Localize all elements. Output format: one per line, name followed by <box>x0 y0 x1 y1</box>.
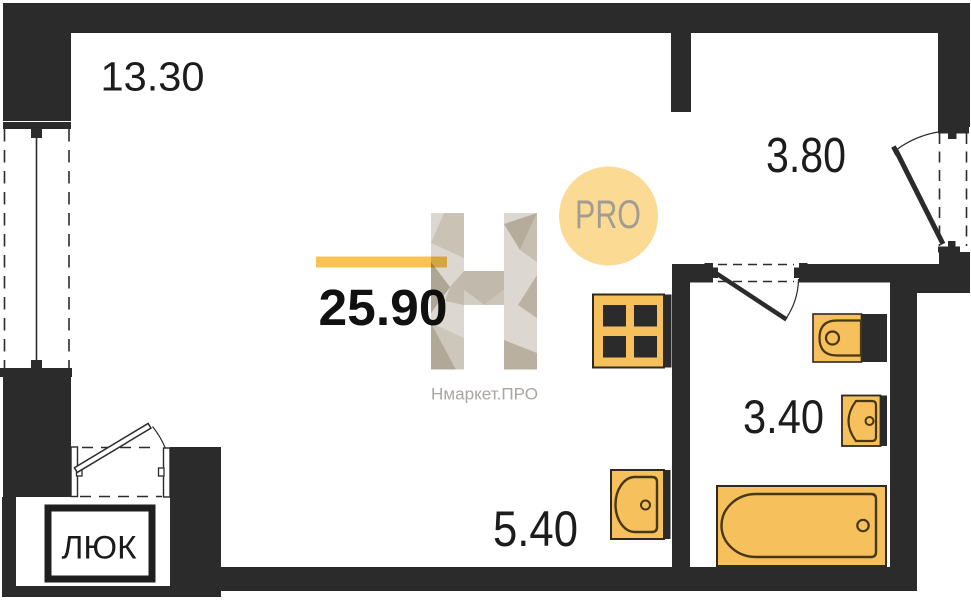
svg-text:Нмаркет.ПРО: Нмаркет.ПРО <box>431 385 538 404</box>
svg-text:25.90: 25.90 <box>319 279 448 336</box>
svg-text:13.30: 13.30 <box>101 54 205 100</box>
svg-text:3.40: 3.40 <box>743 390 824 443</box>
svg-text:5.40: 5.40 <box>493 501 578 557</box>
svg-text:PRO: PRO <box>575 193 641 237</box>
svg-text:3.80: 3.80 <box>766 129 846 183</box>
svg-text:ЛЮК: ЛЮК <box>62 530 137 566</box>
